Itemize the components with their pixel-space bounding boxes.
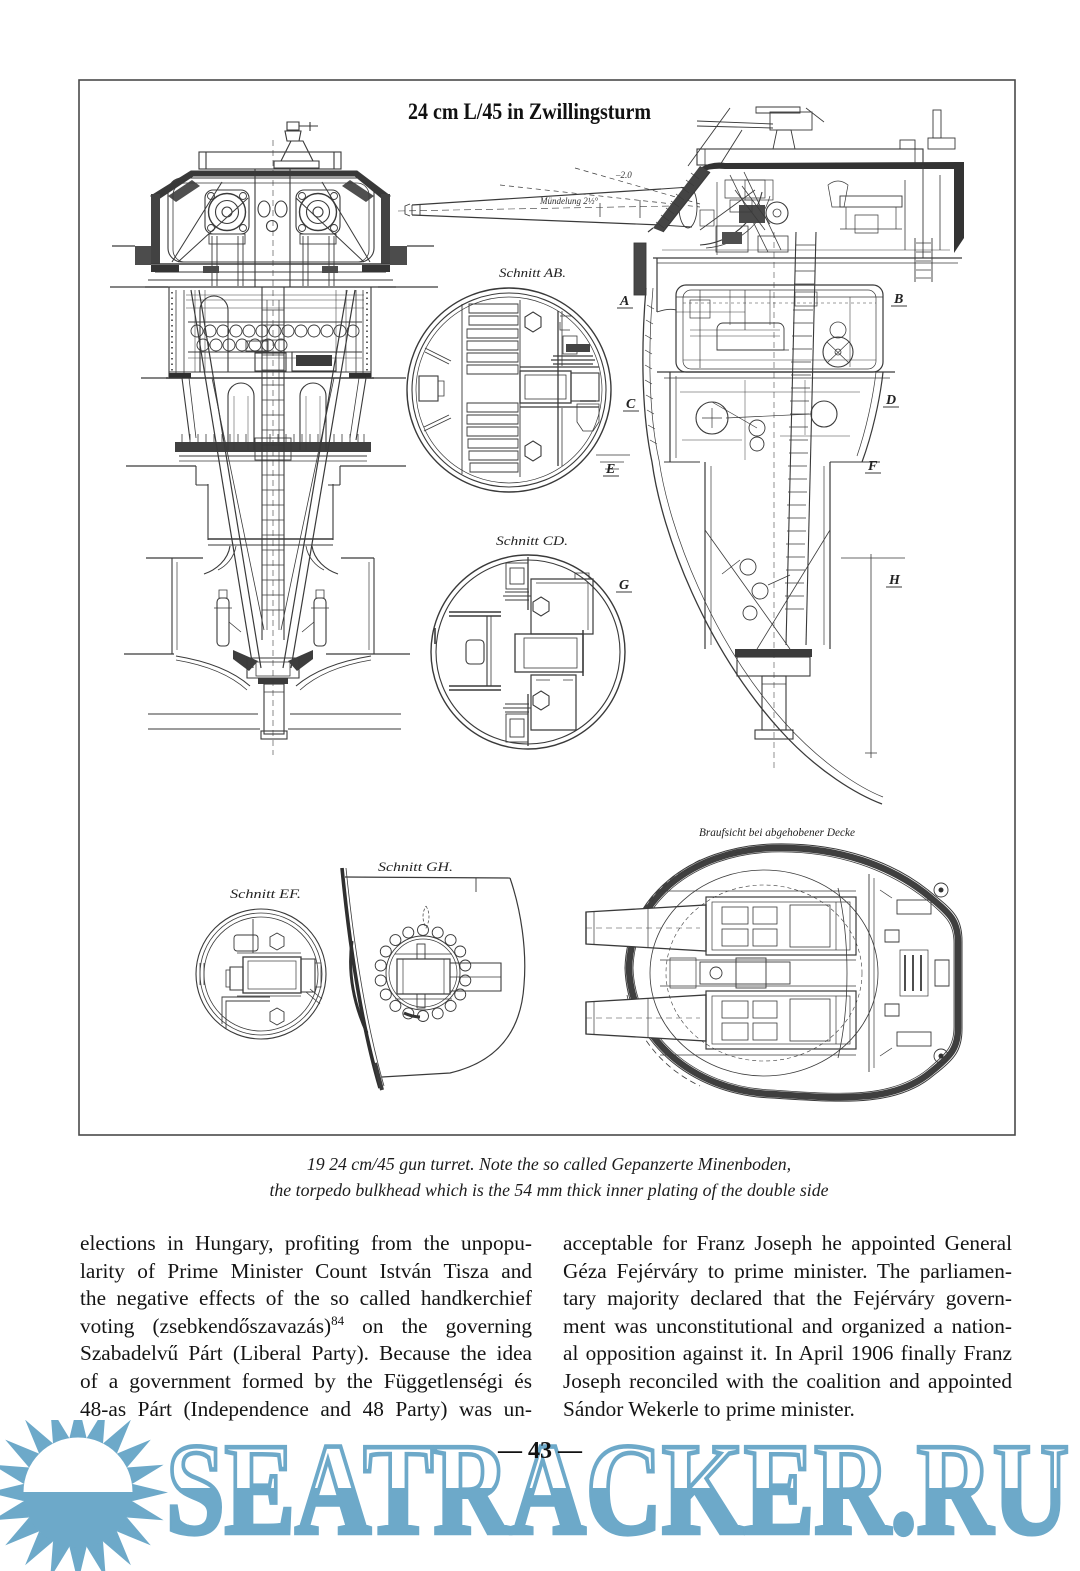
svg-text:–2.0: –2.0 [615, 170, 632, 180]
svg-text:D: D [885, 393, 896, 408]
svg-text:B: B [893, 292, 903, 307]
svg-text:24 cm L/45 in Zwillingsturm: 24 cm L/45 in Zwillingsturm [408, 99, 651, 124]
svg-text:H: H [888, 573, 901, 588]
svg-text:G: G [619, 578, 629, 593]
svg-text:Mündelung 2½°: Mündelung 2½° [539, 196, 598, 206]
svg-text:F: F [867, 459, 878, 474]
svg-text:Braufsicht bei abgehobener Dec: Braufsicht bei abgehobener Decke [699, 825, 856, 839]
svg-text:Schnitt AB.: Schnitt AB. [499, 265, 566, 280]
svg-text:Schnitt CD.: Schnitt CD. [496, 533, 568, 548]
svg-text:E: E [605, 462, 615, 477]
svg-text:Schnitt EF.: Schnitt EF. [230, 886, 301, 901]
svg-text:Schnitt GH.: Schnitt GH. [378, 859, 453, 874]
svg-text:A: A [619, 294, 629, 309]
svg-text:C: C [626, 397, 636, 412]
